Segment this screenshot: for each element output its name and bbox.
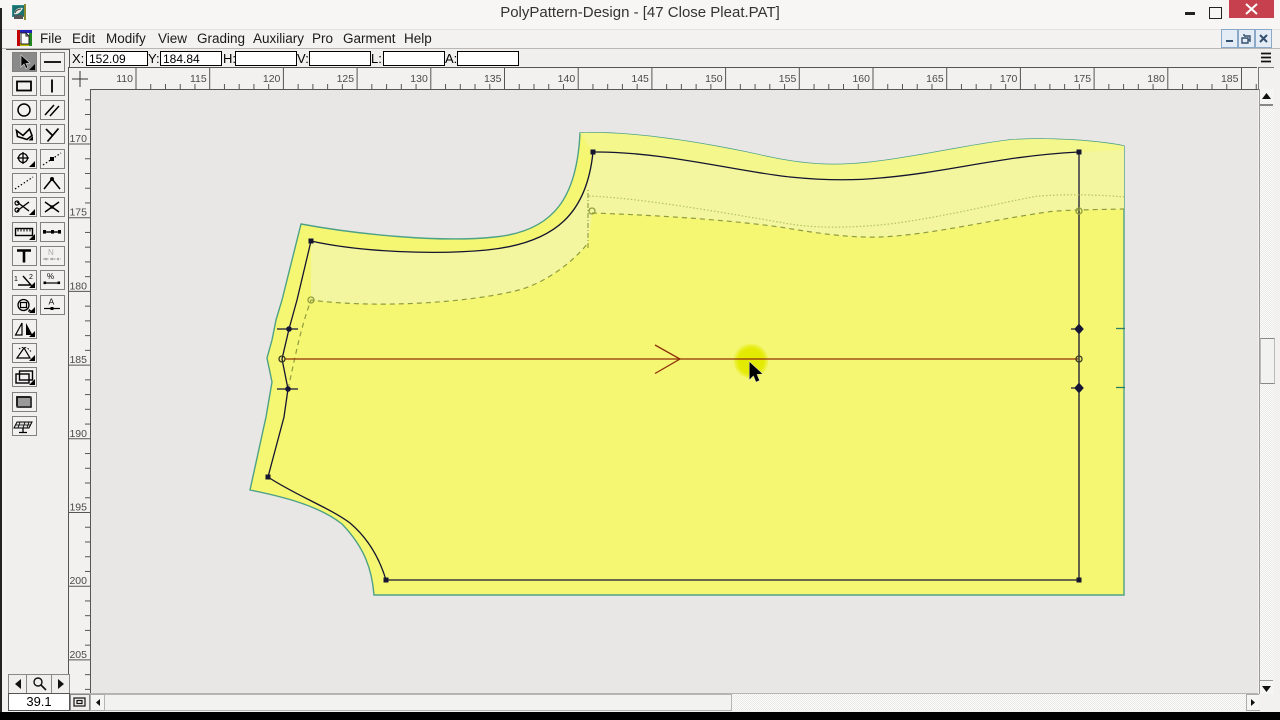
svg-text:115: 115 [190,73,207,85]
svg-text:155: 155 [779,73,797,85]
svg-text:A: A [49,296,55,306]
svg-text:195: 195 [69,502,87,514]
svg-text:190: 190 [69,428,87,440]
svg-text:170: 170 [1000,73,1018,85]
svg-text:125: 125 [337,73,355,85]
svg-text:2: 2 [29,274,33,281]
svg-text:180: 180 [69,280,87,292]
svg-text:1: 1 [14,276,18,283]
svg-text:110: 110 [116,73,133,85]
svg-text:140: 140 [558,73,576,85]
svg-text:145: 145 [631,73,649,85]
svg-text:205: 205 [69,649,87,661]
svg-text:165: 165 [926,73,944,85]
svg-text:175: 175 [69,207,87,219]
svg-text:175: 175 [1074,73,1092,85]
svg-text:120: 120 [263,73,281,85]
svg-text:160: 160 [852,73,870,85]
svg-text:150: 150 [705,73,723,85]
svg-text:130: 130 [410,73,428,85]
svg-text:170: 170 [69,133,87,145]
svg-text:135: 135 [484,73,502,85]
svg-text:185: 185 [1221,73,1239,85]
svg-text:%: % [47,272,54,281]
svg-text:200: 200 [69,575,87,587]
svg-text:180: 180 [1147,73,1165,85]
svg-text:N: N [48,248,54,257]
svg-text:185: 185 [69,354,87,366]
